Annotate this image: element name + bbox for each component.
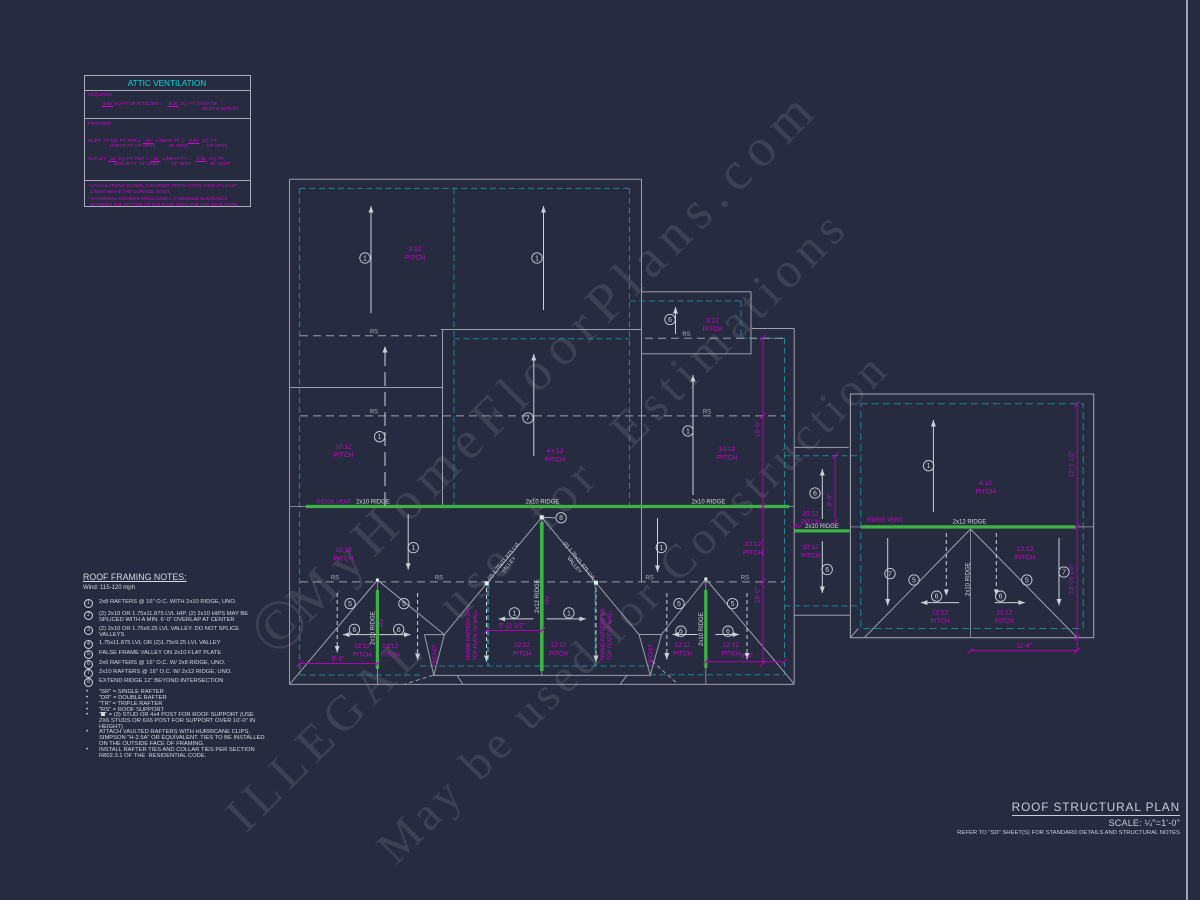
svg-text:1: 1 xyxy=(686,428,690,435)
svg-text:12:12PITCH: 12:12PITCH xyxy=(381,643,400,658)
svg-text:1: 1 xyxy=(567,610,571,617)
svg-text:5: 5 xyxy=(402,601,406,608)
svg-text:RIDGE VENT: RIDGE VENT xyxy=(867,518,903,524)
svg-text:12:12PITCH: 12:12PITCH xyxy=(1015,546,1035,561)
svg-text:12'-10 1/2": 12'-10 1/2" xyxy=(1069,564,1076,594)
svg-text:2x10 RIDGE: 2x10 RIDGE xyxy=(966,562,972,596)
svg-text:(2) 1.75x11.875 LVL: (2) 1.75x11.875 LVL xyxy=(561,541,596,582)
svg-text:RV: RV xyxy=(380,619,386,627)
svg-text:12:12PITCH: 12:12PITCH xyxy=(549,642,568,657)
svg-text:1: 1 xyxy=(378,434,382,441)
svg-text:2x10 RIDGE: 2x10 RIDGE xyxy=(371,611,377,645)
svg-text:2x10 RIDGE: 2x10 RIDGE xyxy=(805,524,839,530)
svg-text:RS: RS xyxy=(645,576,653,582)
svg-text:3:12PITCH: 3:12PITCH xyxy=(405,246,425,261)
svg-text:12:12PITCH: 12:12PITCH xyxy=(931,610,950,625)
svg-text:12:12PITCH: 12:12PITCH xyxy=(673,642,692,657)
svg-text:1: 1 xyxy=(512,610,516,617)
svg-text:RS: RS xyxy=(370,330,378,336)
svg-text:6: 6 xyxy=(352,627,356,634)
svg-text:5: 5 xyxy=(348,601,352,608)
svg-text:8'-4": 8'-4" xyxy=(741,653,754,660)
svg-text:7: 7 xyxy=(888,571,892,578)
svg-text:2x10 RIDGE: 2x10 RIDGE xyxy=(692,500,726,506)
svg-text:5: 5 xyxy=(1025,577,1029,584)
svg-text:1: 1 xyxy=(535,255,539,262)
svg-text:2x10 RIDGE: 2x10 RIDGE xyxy=(356,500,390,506)
svg-text:1: 1 xyxy=(659,545,663,552)
svg-text:RS: RS xyxy=(682,332,690,338)
svg-text:12:12PITCH: 12:12PITCH xyxy=(513,642,532,657)
svg-text:CRICKET: CRICKET xyxy=(433,645,439,667)
svg-text:4:12PITCH: 4:12PITCH xyxy=(975,480,995,495)
svg-text:RV: RV xyxy=(546,596,552,604)
svg-text:2x10 RIDGE: 2x10 RIDGE xyxy=(699,612,705,646)
svg-text:8'-4": 8'-4" xyxy=(332,656,345,663)
svg-text:4+:12PITCH: 4+:12PITCH xyxy=(545,448,565,463)
svg-text:2x10 RIDGE: 2x10 RIDGE xyxy=(526,500,560,506)
svg-text:11'-4": 11'-4" xyxy=(1016,643,1032,650)
svg-text:6: 6 xyxy=(726,629,730,636)
svg-text:12:12PITCH: 12:12PITCH xyxy=(995,610,1014,625)
svg-text:5: 5 xyxy=(912,577,916,584)
svg-text:16'-0": 16'-0" xyxy=(755,421,762,437)
svg-text:12:12PITCH: 12:12PITCH xyxy=(353,643,372,658)
svg-text:RS: RS xyxy=(331,576,339,582)
svg-text:TOP PLATE OF WALL: TOP PLATE OF WALL xyxy=(608,610,614,660)
svg-text:12'-1 1/2": 12'-1 1/2" xyxy=(1069,451,1076,478)
svg-text:RV: RV xyxy=(794,524,802,530)
svg-text:RS: RS xyxy=(370,410,378,416)
svg-text:RS: RS xyxy=(703,410,711,416)
svg-text:6: 6 xyxy=(999,594,1003,601)
svg-text:RIDGE VENT: RIDGE VENT xyxy=(316,500,352,506)
svg-text:6: 6 xyxy=(813,490,817,497)
svg-text:6: 6 xyxy=(668,317,672,324)
svg-text:RS: RS xyxy=(741,576,749,582)
svg-text:FRAME RAFTERS ON: FRAME RAFTERS ON xyxy=(466,608,472,660)
svg-text:5: 5 xyxy=(731,601,735,608)
svg-text:FRAME RAFTERS ON: FRAME RAFTERS ON xyxy=(601,608,607,660)
svg-text:7: 7 xyxy=(1062,569,1066,576)
svg-text:7: 7 xyxy=(526,415,530,422)
svg-text:5: 5 xyxy=(677,601,681,608)
svg-text:RS: RS xyxy=(435,576,443,582)
svg-text:6: 6 xyxy=(679,629,683,636)
svg-text:10:12PITCH: 10:12PITCH xyxy=(333,444,353,459)
svg-text:10:12PITCH: 10:12PITCH xyxy=(333,547,353,562)
svg-text:12:12PITCH: 12:12PITCH xyxy=(722,642,741,657)
svg-text:CRICKET: CRICKET xyxy=(649,644,655,666)
svg-text:5'-11 1/2": 5'-11 1/2" xyxy=(499,623,525,630)
svg-text:10:12PITCH: 10:12PITCH xyxy=(717,446,737,461)
svg-text:10:12PITCH: 10:12PITCH xyxy=(801,544,820,559)
svg-text:TOP PLATE OF WALL: TOP PLATE OF WALL xyxy=(473,610,479,660)
svg-text:16'-0": 16'-0" xyxy=(755,587,762,603)
svg-text:8'-0": 8'-0" xyxy=(827,494,834,507)
svg-text:8: 8 xyxy=(559,515,563,522)
svg-text:6: 6 xyxy=(397,627,401,634)
svg-text:10:12PITCH: 10:12PITCH xyxy=(743,541,763,556)
svg-text:1: 1 xyxy=(411,545,415,552)
svg-text:1: 1 xyxy=(363,255,367,262)
svg-text:1: 1 xyxy=(927,463,931,470)
svg-text:6: 6 xyxy=(825,567,829,574)
svg-text:2x12 RIDGE: 2x12 RIDGE xyxy=(535,579,541,613)
svg-text:2x12 RIDGE: 2x12 RIDGE xyxy=(953,520,987,526)
svg-text:6: 6 xyxy=(935,594,939,601)
